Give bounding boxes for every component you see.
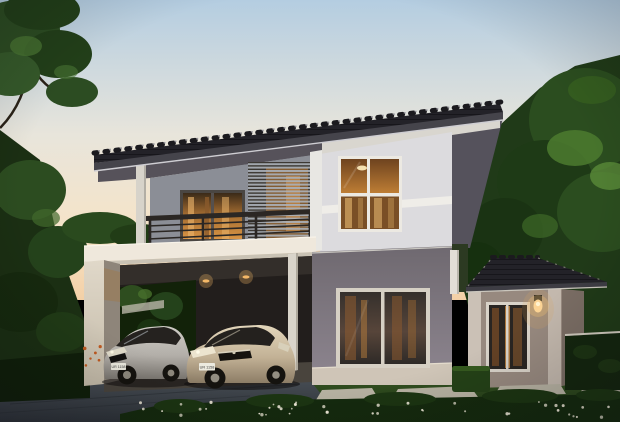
house-rendering: UR 1158 UR 1158 [0, 0, 620, 422]
rendering-canvas: UR 1158 UR 1158 [0, 0, 620, 422]
photo-vignette [0, 0, 620, 422]
